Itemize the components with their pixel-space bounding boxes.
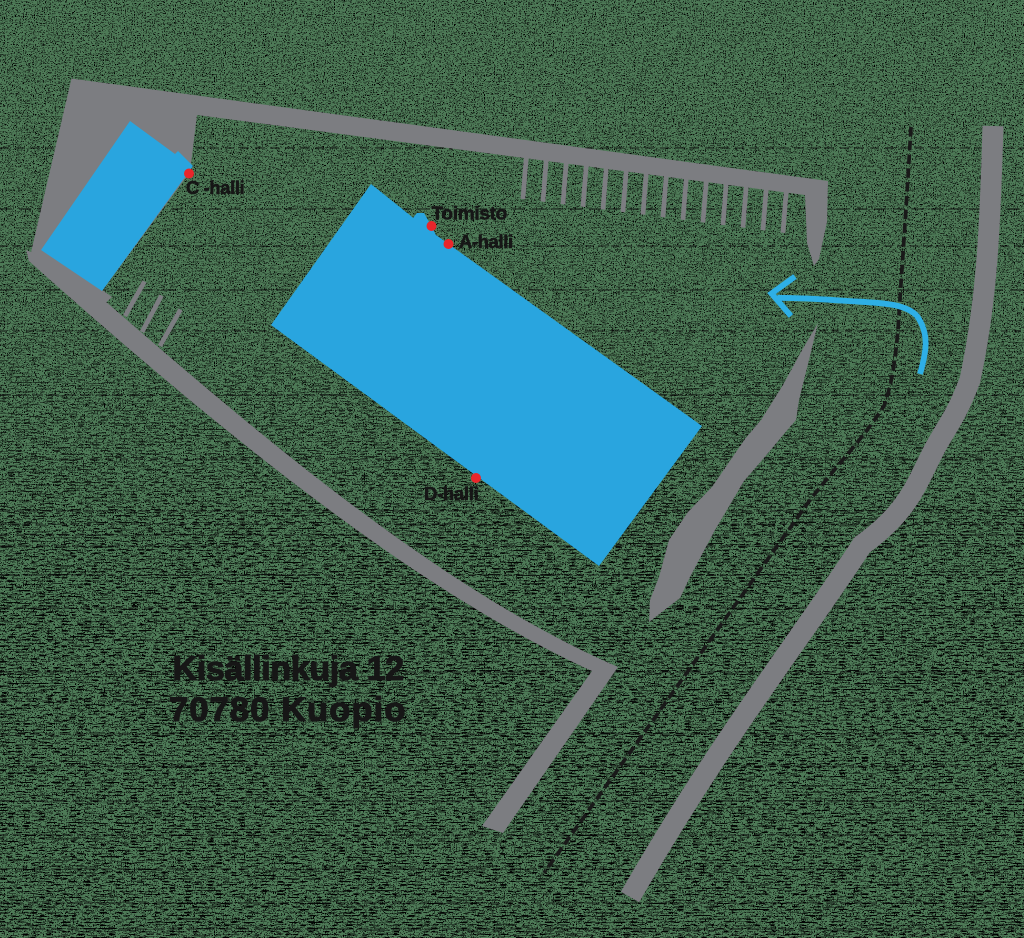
svg-text:Kisällinkuja 12: Kisällinkuja 12 (173, 650, 404, 688)
svg-text:C -halli: C -halli (186, 177, 244, 198)
svg-text:70780 Kuopio: 70780 Kuopio (169, 691, 407, 729)
svg-text:Toimisto: Toimisto (432, 203, 507, 224)
svg-text:D-halli: D-halli (424, 483, 478, 504)
svg-text:A-halli: A-halli (459, 231, 513, 252)
